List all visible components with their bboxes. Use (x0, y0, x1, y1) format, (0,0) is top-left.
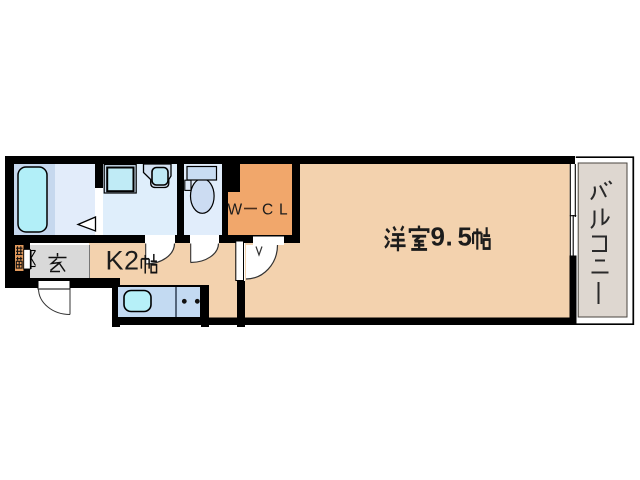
svg-text:L: L (279, 202, 288, 219)
svg-text:C: C (262, 202, 273, 219)
svg-text:9: 9 (431, 222, 445, 252)
svg-text:5: 5 (458, 222, 472, 252)
svg-text:W: W (228, 202, 243, 219)
svg-text:.: . (446, 222, 453, 252)
svg-text:K2: K2 (106, 246, 140, 276)
